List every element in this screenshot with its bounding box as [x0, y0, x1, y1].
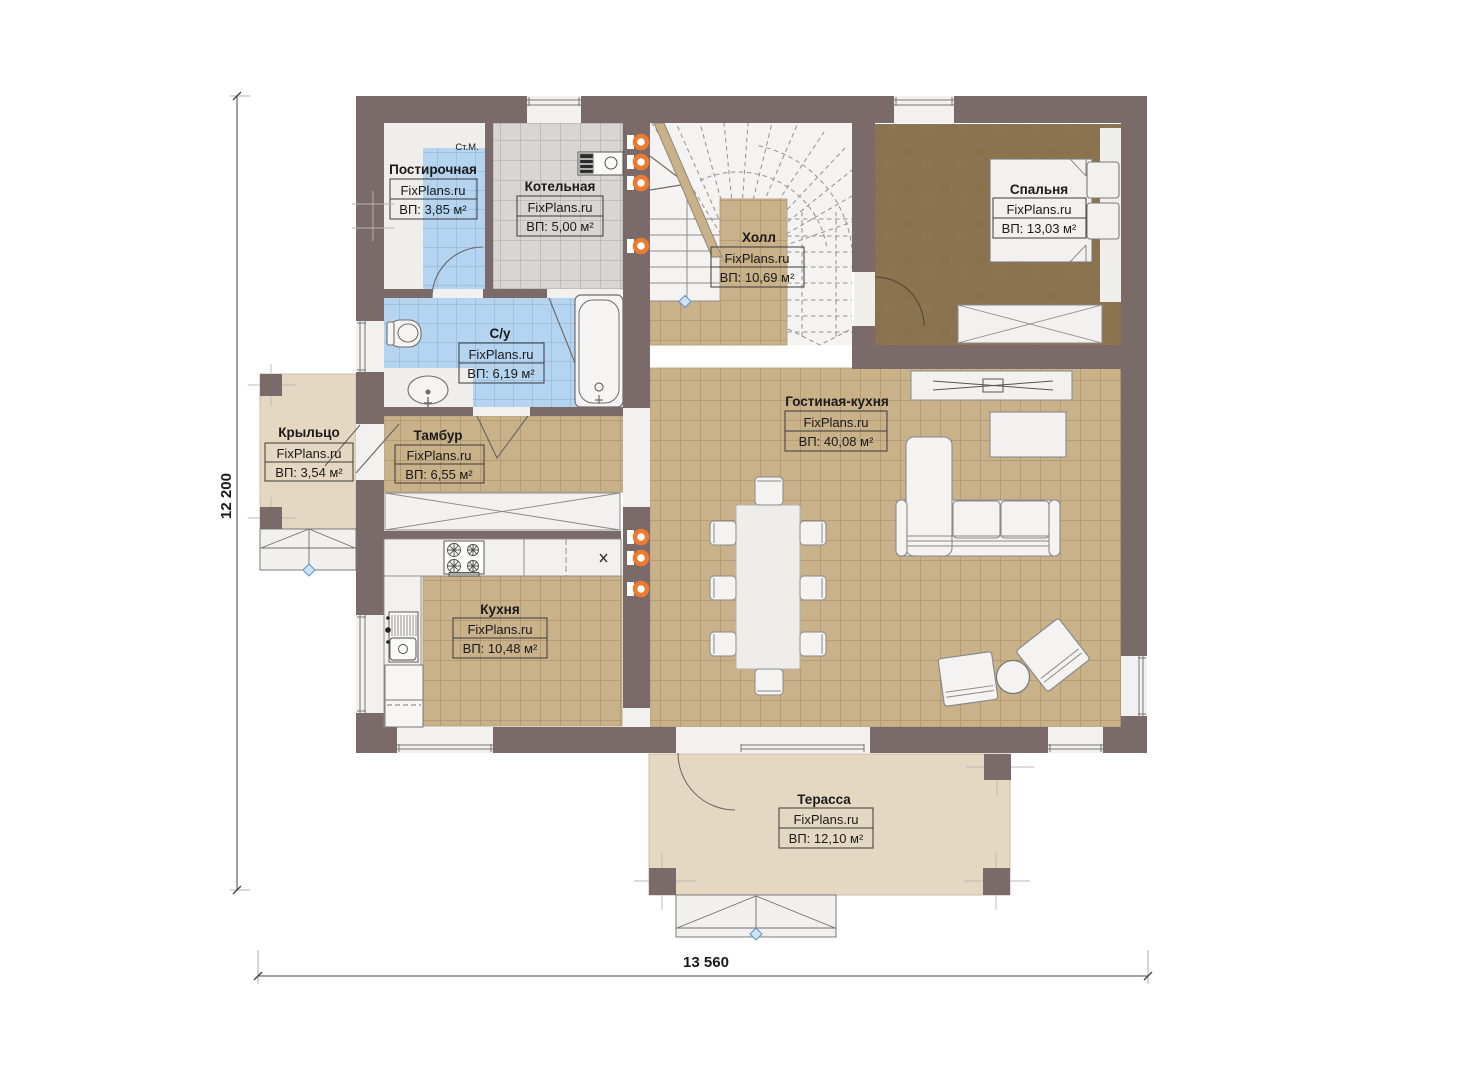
svg-text:ВП: 12,10 м²: ВП: 12,10 м²	[789, 831, 864, 846]
svg-text:FixPlans.ru: FixPlans.ru	[406, 448, 471, 463]
svg-text:Кухня: Кухня	[480, 602, 519, 617]
svg-text:13 560: 13 560	[683, 954, 729, 971]
svg-text:FixPlans.ru: FixPlans.ru	[467, 622, 532, 637]
svg-text:FixPlans.ru: FixPlans.ru	[803, 415, 868, 430]
svg-text:FixPlans.ru: FixPlans.ru	[527, 200, 592, 215]
svg-text:Тамбур: Тамбур	[414, 428, 463, 443]
svg-text:Терасса: Терасса	[797, 792, 851, 807]
svg-text:ВП: 3,54 м²: ВП: 3,54 м²	[275, 465, 343, 480]
svg-text:Крыльцо: Крыльцо	[278, 425, 339, 440]
svg-text:Холл: Холл	[742, 230, 776, 245]
svg-text:FixPlans.ru: FixPlans.ru	[1006, 202, 1071, 217]
svg-text:FixPlans.ru: FixPlans.ru	[276, 446, 341, 461]
svg-text:ВП: 13,03 м²: ВП: 13,03 м²	[1002, 221, 1077, 236]
svg-text:С/у: С/у	[489, 326, 511, 341]
svg-text:Постирочная: Постирочная	[389, 162, 477, 177]
svg-text:Спальня: Спальня	[1010, 182, 1068, 197]
svg-text:ВП: 6,19 м²: ВП: 6,19 м²	[467, 366, 535, 381]
svg-text:FixPlans.ru: FixPlans.ru	[400, 183, 465, 198]
svg-text:ВП: 10,48 м²: ВП: 10,48 м²	[463, 641, 538, 656]
svg-text:ВП: 40,08 м²: ВП: 40,08 м²	[799, 434, 874, 449]
svg-text:FixPlans.ru: FixPlans.ru	[468, 347, 533, 362]
svg-text:ВП: 10,69 м²: ВП: 10,69 м²	[720, 270, 795, 285]
svg-text:Ст.М.: Ст.М.	[455, 142, 478, 153]
svg-text:ВП: 6,55 м²: ВП: 6,55 м²	[405, 467, 473, 482]
svg-text:Гостиная-кухня: Гостиная-кухня	[785, 394, 888, 409]
svg-text:12 200: 12 200	[218, 473, 235, 519]
svg-text:FixPlans.ru: FixPlans.ru	[793, 812, 858, 827]
svg-text:ВП: 3,85 м²: ВП: 3,85 м²	[399, 202, 467, 217]
svg-text:FixPlans.ru: FixPlans.ru	[724, 251, 789, 266]
svg-text:Котельная: Котельная	[525, 179, 596, 194]
svg-text:ВП: 5,00 м²: ВП: 5,00 м²	[526, 219, 594, 234]
